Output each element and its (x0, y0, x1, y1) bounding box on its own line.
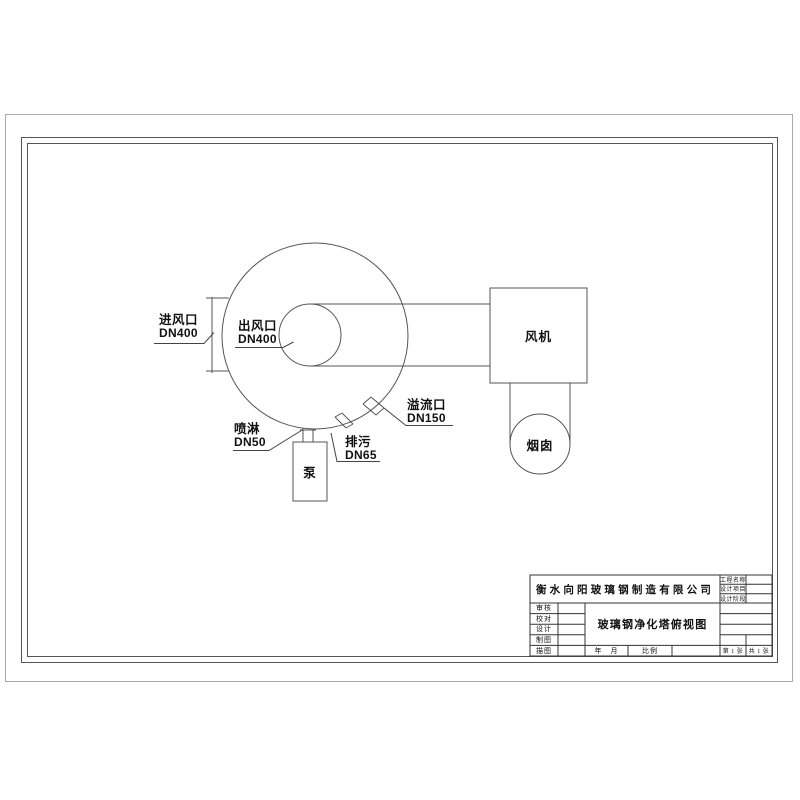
field-design: 设计 (530, 624, 558, 635)
drain-label-size: DN65 (345, 449, 377, 461)
drain-label: 排污 DN65 (345, 436, 377, 461)
field-scale: 比例 (628, 645, 672, 656)
fan-label: 风机 (490, 288, 587, 383)
overflow-nozzle (363, 397, 384, 415)
chimney-label: 烟囱 (510, 414, 570, 474)
inlet-label-size: DN400 (159, 327, 198, 339)
field-sheet-number: 第 1 张 (720, 645, 746, 656)
field-proofread: 校对 (530, 614, 558, 625)
field-sheet-total: 共 1 张 (746, 645, 772, 656)
field-design-project: 设计项目 (720, 584, 746, 593)
field-project-name: 工程名称 (720, 575, 746, 584)
overflow-label: 溢流口 DN150 (407, 399, 446, 424)
drawing-title: 玻璃钢净化塔俯视图 (585, 603, 720, 645)
field-design-stage: 设计阶段 (720, 594, 746, 603)
outlet-label: 出风口 DN400 (238, 320, 277, 345)
field-date: 年 月 (585, 645, 628, 656)
outlet-duct-lines (310, 304, 490, 366)
spray-label-size: DN50 (234, 436, 266, 448)
field-draft: 制图 (530, 635, 558, 646)
pump-label: 泵 (293, 442, 327, 501)
field-review: 审核 (530, 603, 558, 614)
outlet-circle (279, 304, 341, 366)
inlet-label: 进风口 DN400 (159, 314, 198, 339)
cad-linework (0, 0, 800, 800)
spray-label: 喷淋 DN50 (234, 423, 266, 448)
field-trace: 描图 (530, 645, 558, 656)
outlet-label-size: DN400 (238, 333, 277, 345)
overflow-label-size: DN150 (407, 412, 446, 424)
company-name: 衡水向阳玻璃钢制造有限公司 (530, 575, 720, 603)
drawing-sheet: 进风口 DN400 出风口 DN400 喷淋 DN50 排污 DN65 溢流口 … (0, 0, 800, 800)
